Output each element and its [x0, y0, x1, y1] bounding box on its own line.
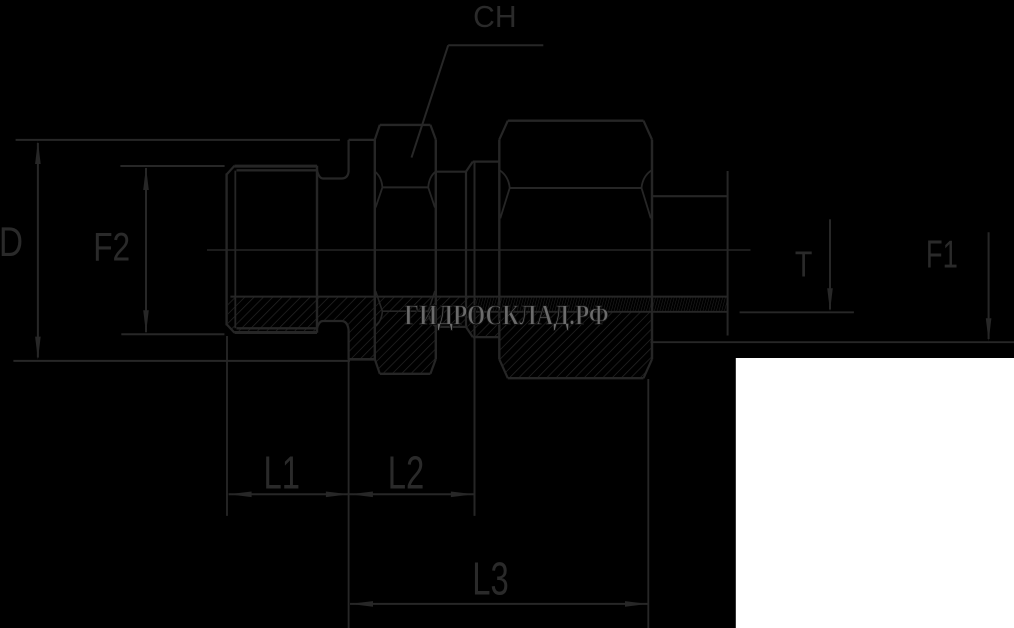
svg-text:T: T [795, 244, 813, 285]
svg-text:L3: L3 [472, 553, 509, 605]
svg-text:D: D [0, 218, 23, 265]
svg-text:CH: CH [473, 0, 516, 34]
svg-text:L1: L1 [264, 446, 301, 498]
svg-text:ГИДРОСКЛАД.РФ: ГИДРОСКЛАД.РФ [404, 300, 608, 332]
svg-text:F1: F1 [926, 233, 958, 276]
svg-text:L2: L2 [388, 446, 425, 498]
svg-text:F2: F2 [93, 225, 130, 269]
